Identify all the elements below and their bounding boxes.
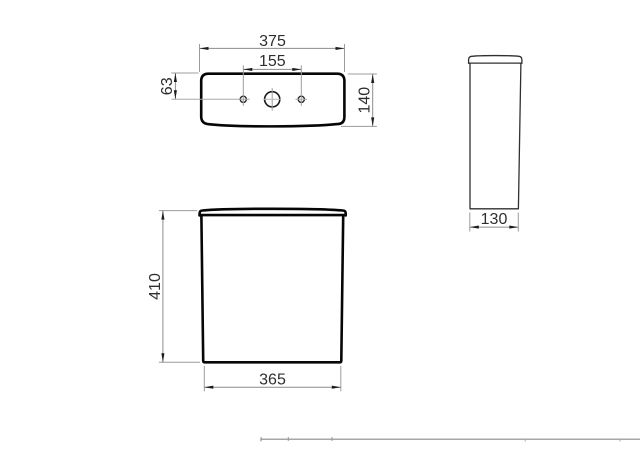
svg-text:130: 130 xyxy=(481,211,508,228)
svg-text:140: 140 xyxy=(356,87,373,114)
svg-text:63: 63 xyxy=(159,77,176,95)
svg-text:375: 375 xyxy=(259,33,286,50)
svg-text:410: 410 xyxy=(147,273,164,300)
svg-text:365: 365 xyxy=(259,372,286,389)
svg-text:155: 155 xyxy=(259,53,286,70)
